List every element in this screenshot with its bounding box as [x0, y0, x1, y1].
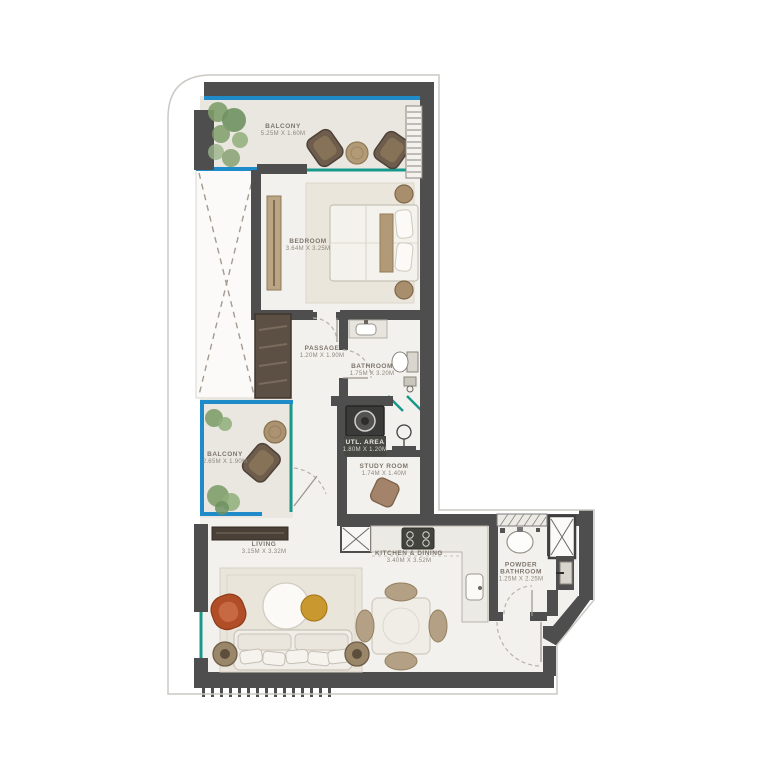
closet [255, 314, 291, 398]
louvre-screen [406, 106, 422, 178]
floor-plan-page: BALCONY 5.25M X 1.60M BEDROOM 3.64M X 3.… [0, 0, 768, 768]
railing-ticks [202, 688, 331, 697]
hatched-wall [497, 514, 547, 526]
floor-plan-drawing [0, 0, 768, 768]
